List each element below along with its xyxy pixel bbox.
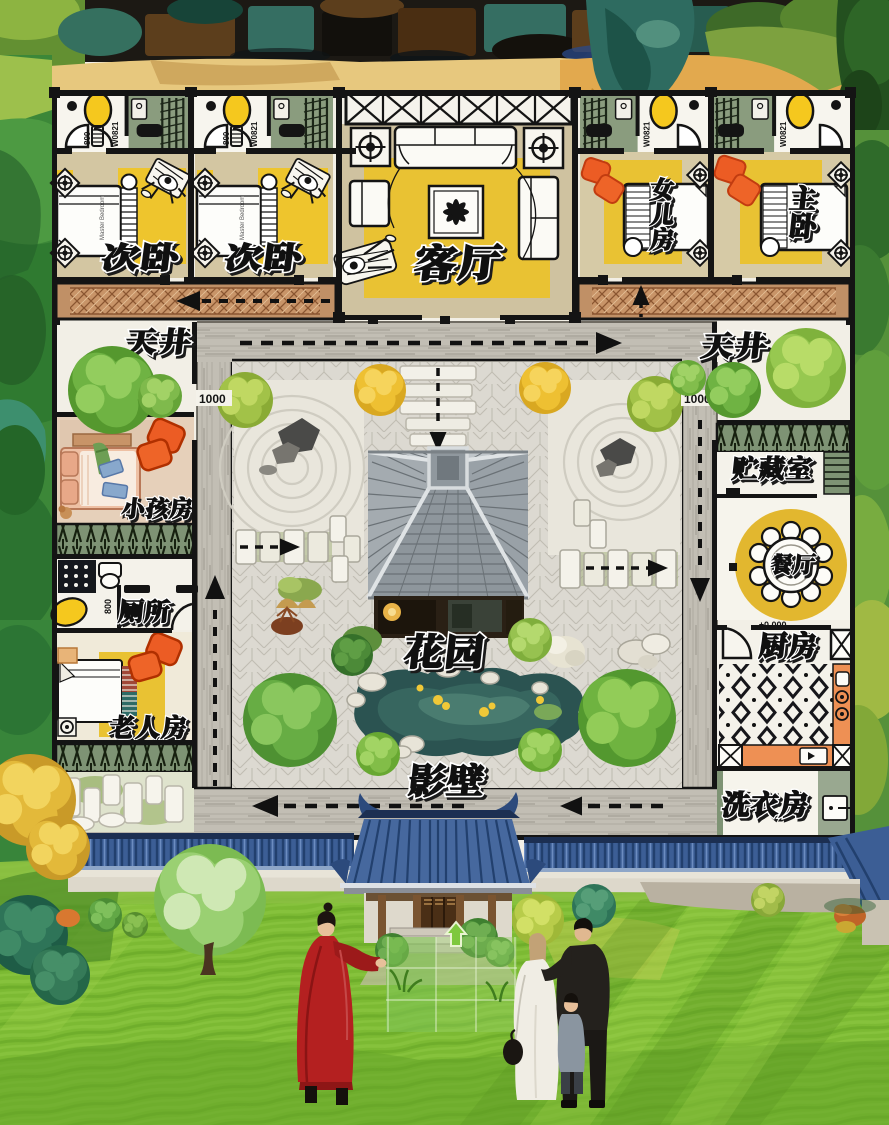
svg-text:W0821: W0821 [779, 121, 788, 147]
svg-text:W0821: W0821 [111, 121, 120, 147]
svg-text:W0821: W0821 [643, 121, 652, 147]
svg-text:W0821: W0821 [250, 121, 259, 147]
svg-text:800: 800 [222, 131, 231, 145]
svg-text:800: 800 [103, 599, 113, 614]
svg-text:Master Bedroom: Master Bedroom [240, 196, 246, 240]
svg-text:1000: 1000 [199, 392, 226, 406]
svg-text:800: 800 [83, 131, 92, 145]
svg-text:Master Bedroom: Master Bedroom [100, 196, 106, 240]
